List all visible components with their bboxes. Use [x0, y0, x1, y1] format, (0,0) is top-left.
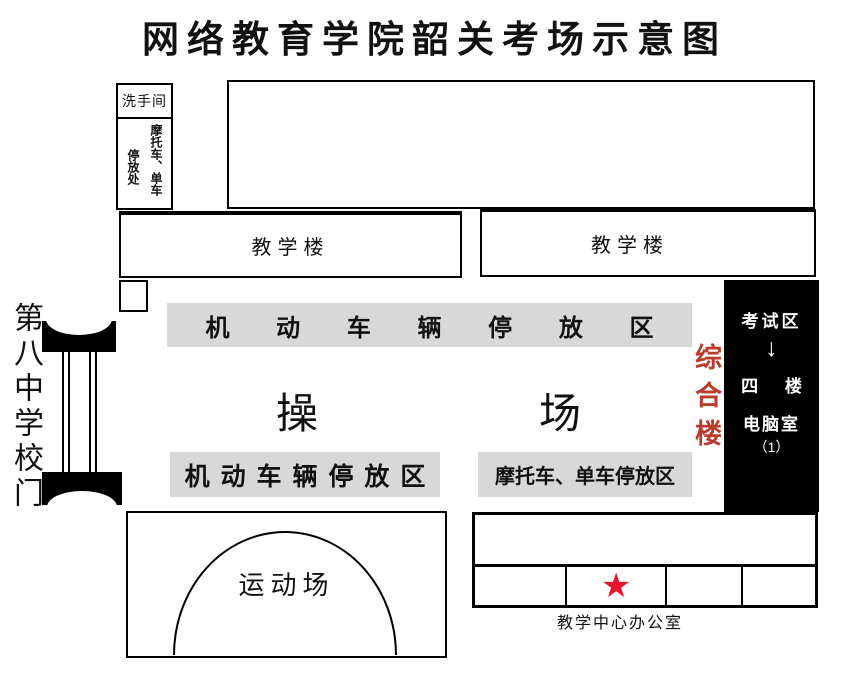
small-corner-box [119, 280, 148, 312]
sports-field-label: 运动场 [128, 565, 445, 602]
exam-area-bar: 考试区 ↓ 四 楼 电脑室 （1） [724, 280, 819, 512]
playground-label-char2: 场 [539, 380, 581, 441]
office-building-cells: ★ [472, 564, 818, 608]
washroom-box: 洗手间 [116, 83, 173, 119]
computer-room-label: 电脑室 [743, 410, 800, 435]
motor-parking-bar-bottom-left: 机 动 车 辆 停 放 区 [170, 452, 440, 497]
room-number-label: （1） [754, 437, 790, 457]
playground-label-char1: 操 [276, 380, 318, 441]
gate-rail [68, 351, 70, 473]
school-gate-label: 第八中学校门 [10, 302, 40, 512]
star-icon: ★ [601, 569, 631, 603]
bike-parking-label-col1: 摩托车、单车 [150, 124, 162, 196]
office-cell-star: ★ [567, 567, 666, 605]
teaching-building-right: 教学楼 [480, 209, 816, 277]
top-building-outline [227, 80, 815, 209]
motor-parking-bar-top: 机 动 车 辆 停 放 区 [167, 303, 692, 347]
exam-floor-label: 四 楼 [741, 372, 802, 397]
sports-field-box: 运动场 [126, 511, 447, 658]
gate-pillar-bottom [42, 472, 122, 505]
office-building-upper [472, 512, 818, 567]
teaching-building-right-label: 教学楼 [591, 229, 705, 258]
bike-parking-bar-bottom-right: 摩托车、单车停放区 [478, 452, 692, 497]
office-label: 教学中心办公室 [470, 609, 770, 633]
gate-pillar-top [42, 321, 116, 352]
teaching-building-left: 教学楼 [119, 211, 462, 278]
bike-parking-label-col2: 停放处 [127, 149, 139, 185]
office-cell [667, 567, 744, 605]
gate-rail [89, 351, 91, 473]
washroom-label: 洗手间 [122, 91, 167, 111]
complex-building-label: 综合楼 [692, 343, 719, 457]
down-arrow-icon: ↓ [765, 336, 778, 361]
bike-parking-box: 摩托车、单车 停放处 [116, 117, 173, 210]
office-cell [475, 567, 567, 605]
teaching-building-left-label: 教学楼 [252, 231, 330, 260]
exam-area-label: 考试区 [742, 307, 802, 332]
page-title: 网络教育学院韶关考场示意图 [0, 9, 843, 63]
office-cell [743, 567, 815, 605]
gate-rail [95, 351, 97, 473]
gate-rail [62, 351, 64, 473]
campus-map: 网络教育学院韶关考场示意图 洗手间 摩托车、单车 停放处 教学楼 教学楼 第八中… [0, 0, 843, 693]
